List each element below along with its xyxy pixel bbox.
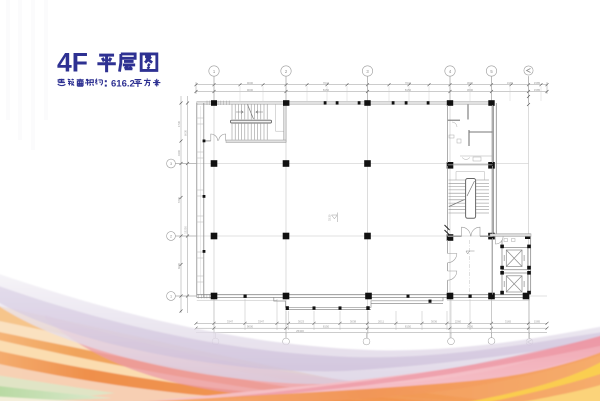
svg-text:6000: 6000 [177,262,181,269]
svg-text:2: 2 [170,235,172,239]
svg-text:1730: 1730 [177,120,181,127]
svg-text:2011: 2011 [378,320,384,324]
svg-text:25300: 25300 [296,329,304,333]
svg-text:1585: 1585 [534,88,541,92]
svg-text:7044: 7044 [323,81,330,85]
svg-text:7044: 7044 [405,81,412,85]
svg-text:1585: 1585 [534,320,541,324]
svg-text:3036: 3036 [431,320,438,324]
svg-text:3600: 3600 [467,88,474,92]
svg-text:13230: 13230 [184,226,188,234]
svg-text:8150: 8150 [405,325,412,329]
svg-text:8150: 8150 [405,88,412,92]
svg-text:8150: 8150 [323,88,330,92]
svg-text:3038: 3038 [350,320,357,324]
svg-text:3165: 3165 [507,81,514,85]
svg-text:3347: 3347 [258,320,265,324]
svg-text:9000: 9000 [247,81,254,85]
svg-text:7200: 7200 [177,196,181,203]
svg-text:3023: 3023 [298,320,305,324]
svg-text:616.2: 616.2 [111,79,135,90]
svg-text:2260: 2260 [455,320,462,324]
svg-text:9000: 9000 [247,325,254,329]
svg-text:4300: 4300 [177,149,181,156]
svg-text:3: 3 [170,162,172,166]
svg-text:8150: 8150 [323,325,330,329]
svg-text:9000: 9000 [247,88,254,92]
svg-text:1: 1 [170,295,172,299]
svg-text:4F: 4F [57,48,88,78]
svg-text:6030: 6030 [184,129,188,136]
svg-text:1585: 1585 [534,81,541,85]
svg-text:3165: 3165 [505,320,512,324]
svg-text:3600: 3600 [467,81,474,85]
svg-text:3347: 3347 [227,320,234,324]
svg-text:33.30: 33.30 [328,214,332,221]
